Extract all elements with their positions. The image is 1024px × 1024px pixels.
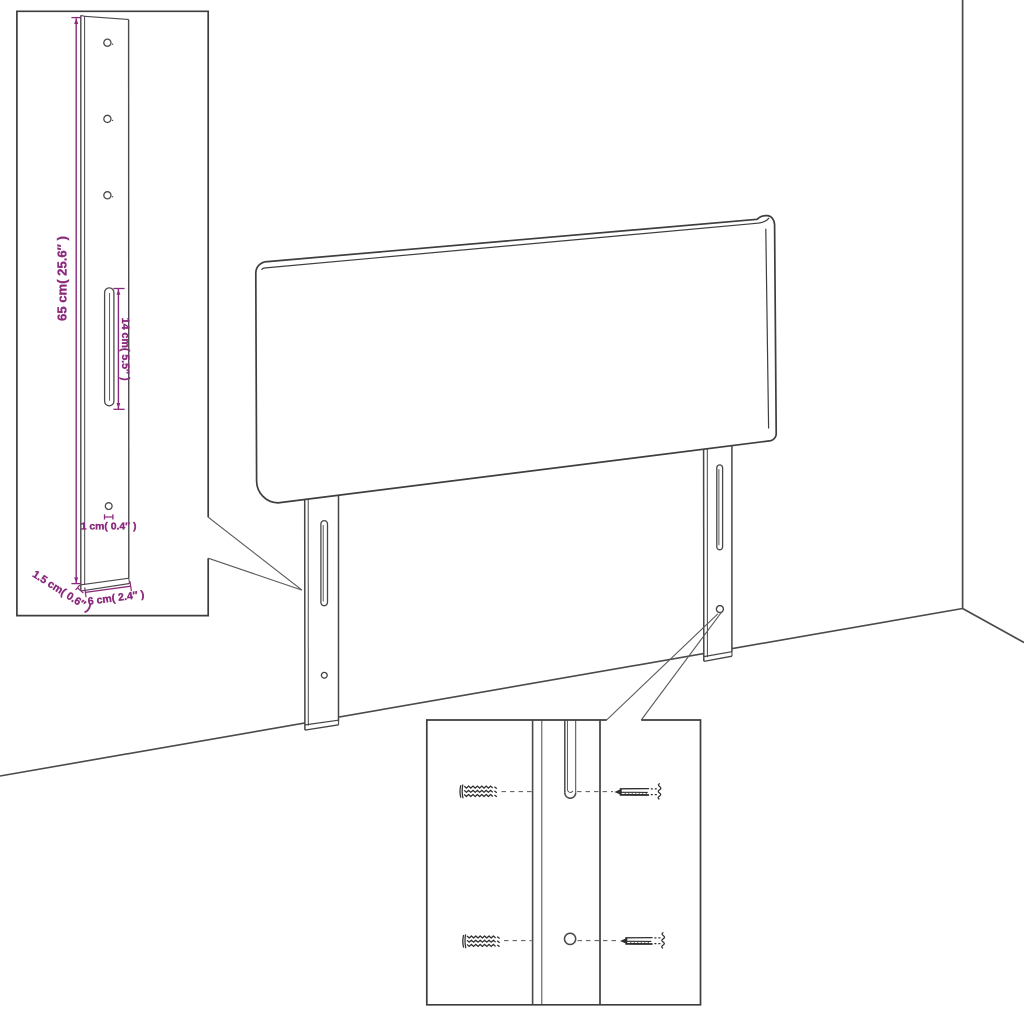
svg-text:1 cm( 0.4″ ): 1 cm( 0.4″ )	[81, 521, 137, 532]
svg-text:14 cm( 5.5″ ): 14 cm( 5.5″ )	[119, 318, 131, 381]
svg-text:65 cm( 25.6″ ): 65 cm( 25.6″ )	[54, 236, 69, 321]
